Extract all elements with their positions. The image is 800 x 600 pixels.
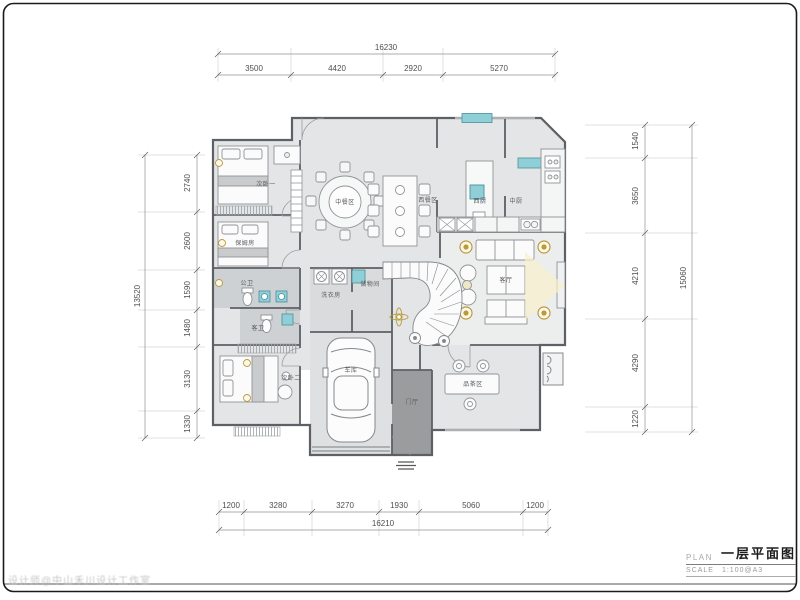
room-label-garage: 车库 xyxy=(344,366,357,374)
dim-right-segment-2: 4210 xyxy=(631,267,640,285)
dim-left-segment-5: 1330 xyxy=(183,415,192,433)
dim-top-segment-0: 3500 xyxy=(245,64,263,73)
room-label-foyer: 门厅 xyxy=(405,398,418,406)
dim-bottom-segment-4: 5060 xyxy=(462,501,480,510)
room-label-bedroom1: 次卧一 xyxy=(256,180,276,188)
dim-top-segment-1: 4420 xyxy=(328,64,346,73)
toilet-icon xyxy=(242,288,253,306)
room-label-western-kitchen: 西厨 xyxy=(473,198,486,205)
dim-bottom-segment-1: 3280 xyxy=(269,501,287,510)
west-dining-table-icon xyxy=(368,176,430,246)
dim-left-segment-0: 2740 xyxy=(183,174,192,192)
room-label-nanny: 保姆房 xyxy=(235,239,255,247)
scale-label: SCALE xyxy=(686,567,714,574)
dim-left-segment-4: 3130 xyxy=(183,370,192,388)
dim-bottom-segment-5: 1200 xyxy=(526,501,544,510)
fireplace-niche-icon xyxy=(543,353,563,385)
entry-mat-icon xyxy=(396,462,416,469)
plan-label: PLAN xyxy=(686,553,713,562)
dim-right-segment-3: 4290 xyxy=(631,354,640,372)
dim-right-segment-0: 1540 xyxy=(631,132,640,150)
room-label-living: 客厅 xyxy=(499,276,512,284)
floorplan-canvas: 次卧一 保姆房 公卫 客卫 次卧二 车库 门厅 洗衣房 储物间 中餐区 西餐区 … xyxy=(0,0,800,600)
dim-right-total: 15060 xyxy=(679,266,688,289)
dim-left-segment-3: 1480 xyxy=(183,319,192,337)
room-label-public-bath: 公卫 xyxy=(240,280,253,287)
watermark: 设计师@中山禾川设计工作室 xyxy=(8,572,151,587)
dim-left-total: 13520 xyxy=(133,284,142,307)
wardrobe-icon xyxy=(291,170,302,232)
porch-steps-icon xyxy=(234,427,280,436)
dim-top-total: 16230 xyxy=(375,43,398,52)
room-label-bedroom2: 次卧二 xyxy=(281,374,301,382)
radiator2-icon xyxy=(238,344,296,353)
room-label-western-dining: 西餐区 xyxy=(418,196,438,204)
dim-bottom-total: 16210 xyxy=(372,519,395,528)
room-label-chinese-dining: 中餐区 xyxy=(335,198,355,206)
dim-right-segment-4: 1220 xyxy=(631,410,640,428)
dim-bottom-segment-0: 1200 xyxy=(222,501,240,510)
dim-top-segment-2: 2920 xyxy=(404,64,422,73)
floorplan-drawing: 次卧一 保姆房 公卫 客卫 次卧二 车库 门厅 洗衣房 储物间 中餐区 西餐区 … xyxy=(0,0,800,600)
dim-bottom-segment-3: 1930 xyxy=(390,501,408,510)
plan-title: 一层平面图 xyxy=(721,543,796,562)
radiator-icon xyxy=(216,206,272,215)
dim-left-segment-2: 1590 xyxy=(183,281,192,299)
dim-right-segment-1: 3650 xyxy=(631,187,640,205)
room-label-chinese-kitchen: 中厨 xyxy=(509,197,522,205)
sink2-icon xyxy=(282,314,293,325)
room-label-laundry: 洗衣房 xyxy=(321,291,341,299)
title-block: PLAN 一层平面图 SCALE 1:100@A3 xyxy=(686,543,796,577)
car-icon xyxy=(323,338,379,442)
room-label-tea: 品茶区 xyxy=(463,380,483,388)
room-label-storage: 储物间 xyxy=(360,280,380,288)
scale-row: SCALE 1:100@A3 xyxy=(686,565,796,577)
room-label-guest-bath: 客卫 xyxy=(251,324,264,332)
foyer-block xyxy=(392,370,432,455)
scale-value: 1:100@A3 xyxy=(722,567,763,574)
title-row: PLAN 一层平面图 xyxy=(686,543,796,565)
dim-top-segment-3: 5270 xyxy=(490,64,508,73)
dim-bottom-segment-2: 3270 xyxy=(336,501,354,510)
dim-left-segment-1: 2600 xyxy=(183,232,192,250)
